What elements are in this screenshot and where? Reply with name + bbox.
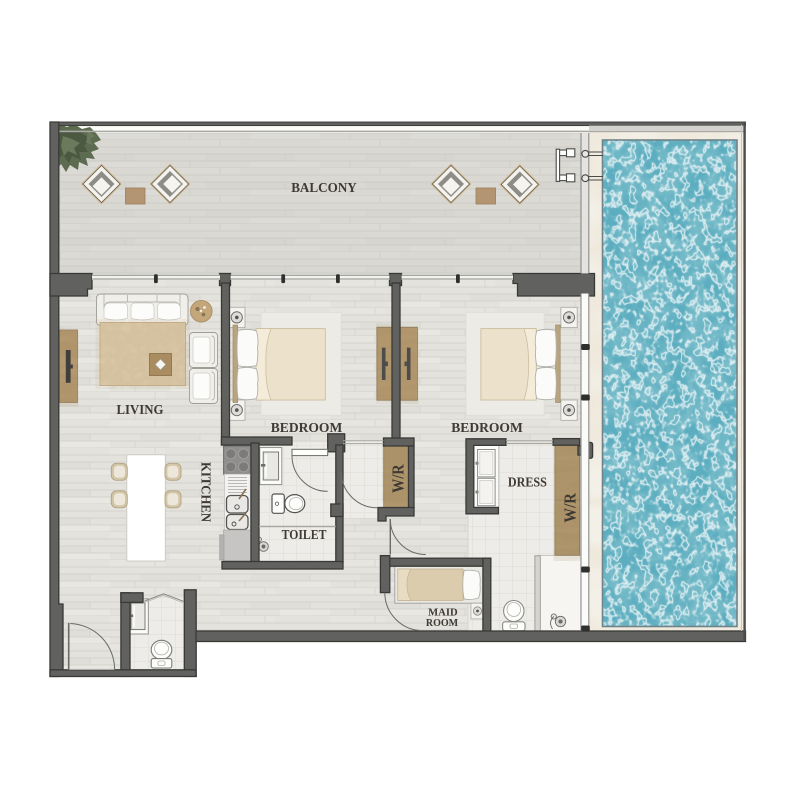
svg-text:TOILET: TOILET [282,528,327,543]
svg-text:KITCHEN: KITCHEN [198,462,213,522]
svg-text:BEDROOM: BEDROOM [451,421,523,436]
svg-text:LIVING: LIVING [117,403,164,418]
svg-text:W/R: W/R [560,493,579,523]
svg-text:DRESS: DRESS [508,475,547,490]
svg-text:W/R: W/R [388,464,407,493]
svg-text:BALCONY: BALCONY [291,181,357,196]
svg-text:ROOM: ROOM [426,618,459,629]
svg-text:BEDROOM: BEDROOM [271,421,343,436]
svg-text:MAID: MAID [428,607,458,618]
